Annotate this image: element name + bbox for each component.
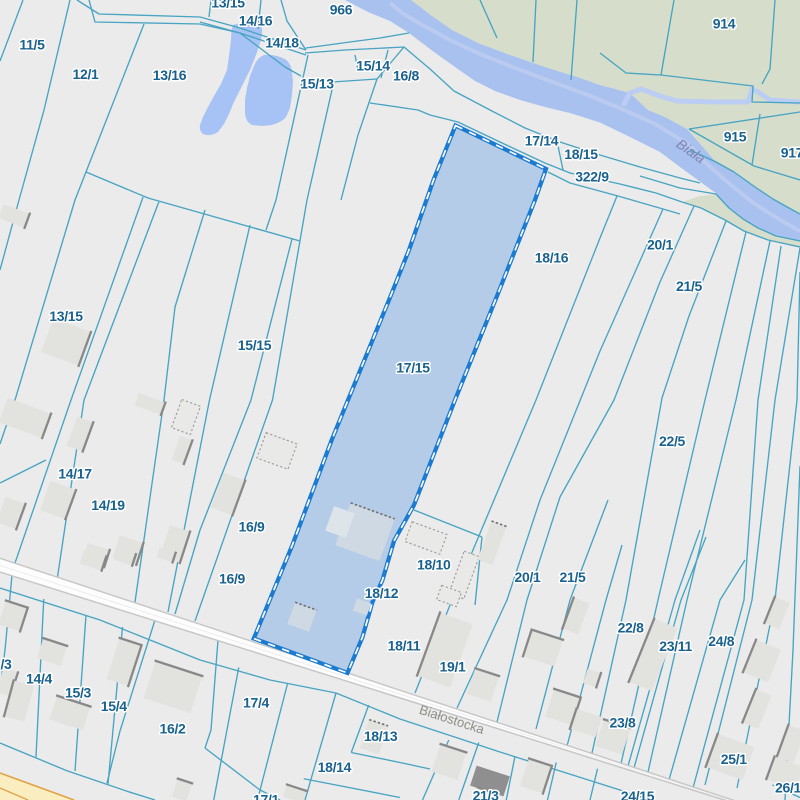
svg-text:25/1: 25/1 bbox=[721, 751, 748, 767]
svg-text:16/8: 16/8 bbox=[393, 67, 420, 83]
svg-text:17/4: 17/4 bbox=[243, 694, 270, 710]
svg-text:18/14: 18/14 bbox=[318, 759, 352, 775]
svg-text:18/10: 18/10 bbox=[417, 556, 451, 572]
svg-text:18/13: 18/13 bbox=[364, 728, 398, 744]
svg-text:/3: /3 bbox=[0, 656, 12, 672]
svg-text:914: 914 bbox=[713, 15, 736, 31]
svg-text:22/8: 22/8 bbox=[618, 619, 645, 635]
svg-text:18/12: 18/12 bbox=[365, 585, 399, 601]
svg-text:11/5: 11/5 bbox=[19, 36, 45, 52]
svg-text:24/15: 24/15 bbox=[621, 788, 655, 800]
svg-text:16/9: 16/9 bbox=[238, 518, 265, 534]
svg-text:15/13: 15/13 bbox=[300, 75, 334, 91]
svg-text:18/15: 18/15 bbox=[564, 146, 598, 162]
svg-text:15/3: 15/3 bbox=[65, 684, 92, 700]
svg-text:15/15: 15/15 bbox=[238, 337, 272, 353]
svg-text:26/1: 26/1 bbox=[775, 779, 800, 795]
svg-text:20/1: 20/1 bbox=[514, 569, 541, 585]
svg-text:24/8: 24/8 bbox=[708, 633, 735, 649]
svg-text:14/19: 14/19 bbox=[91, 497, 125, 513]
svg-text:915: 915 bbox=[724, 128, 747, 144]
svg-text:22/5: 22/5 bbox=[659, 433, 686, 449]
svg-text:19/1: 19/1 bbox=[439, 658, 466, 674]
svg-text:16/9: 16/9 bbox=[219, 570, 246, 586]
svg-text:12/1: 12/1 bbox=[72, 66, 99, 82]
svg-text:322/9: 322/9 bbox=[575, 168, 609, 184]
svg-text:20/1: 20/1 bbox=[647, 236, 674, 252]
svg-text:13/15: 13/15 bbox=[49, 308, 83, 324]
svg-text:18/16: 18/16 bbox=[535, 249, 569, 265]
svg-text:17/14: 17/14 bbox=[525, 132, 559, 148]
svg-text:15/4: 15/4 bbox=[101, 698, 128, 714]
svg-text:15/14: 15/14 bbox=[356, 57, 390, 73]
svg-text:18/11: 18/11 bbox=[388, 637, 421, 653]
svg-text:17/1: 17/1 bbox=[253, 791, 280, 800]
svg-text:21/5: 21/5 bbox=[676, 278, 703, 294]
svg-text:17/15: 17/15 bbox=[396, 359, 430, 375]
svg-text:14/16: 14/16 bbox=[239, 12, 273, 28]
svg-text:16/2: 16/2 bbox=[159, 720, 186, 736]
svg-text:21/5: 21/5 bbox=[559, 569, 586, 585]
svg-text:966: 966 bbox=[330, 1, 353, 17]
svg-text:21/3: 21/3 bbox=[473, 787, 500, 800]
svg-text:14/18: 14/18 bbox=[265, 34, 299, 50]
svg-text:13/16: 13/16 bbox=[153, 67, 187, 83]
svg-text:13/15: 13/15 bbox=[211, 0, 245, 10]
svg-text:14/17: 14/17 bbox=[58, 465, 92, 481]
svg-text:917: 917 bbox=[781, 144, 800, 160]
svg-text:23/11: 23/11 bbox=[659, 638, 692, 654]
svg-text:14/4: 14/4 bbox=[26, 670, 53, 686]
svg-text:23/8: 23/8 bbox=[609, 714, 636, 730]
